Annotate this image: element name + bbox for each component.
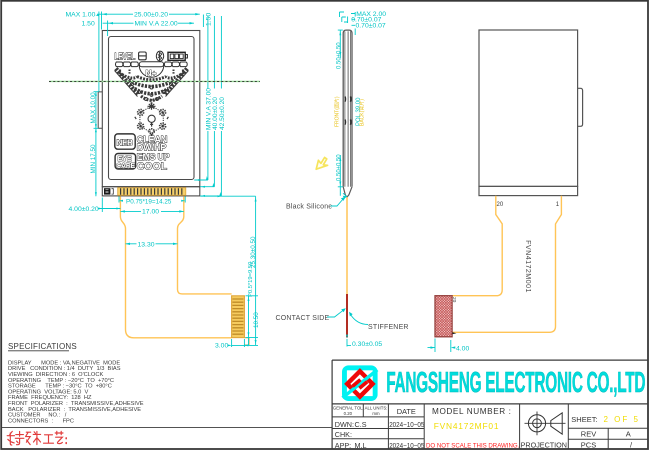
svg-text:2024−10−05: 2024−10−05 [389,421,424,429]
svg-text:CONTACT SIDE: CONTACT SIDE [276,315,330,322]
svg-text:GENERAL TOL: GENERAL TOL [333,406,363,411]
svg-text:2024−10−05: 2024−10−05 [389,443,424,451]
svg-text:0.50±0.50: 0.50±0.50 [336,154,342,181]
svg-text:P0.5*19=9.50: P0.5*19=9.50 [248,262,254,297]
svg-text:M.L: M.L [355,441,367,450]
svg-text:0.50±0.50: 0.50±0.50 [336,42,342,69]
svg-text:ALL UNITS:: ALL UNITS: [365,406,388,411]
svg-text:FRONT(面片): FRONT(面片) [334,96,341,127]
svg-text:0.30±0.05: 0.30±0.05 [352,341,382,348]
svg-text:4.00±0.20: 4.00±0.20 [69,206,99,213]
svg-text:MODEL NUMBER :: MODEL NUMBER : [432,407,512,416]
svg-text:NEB: NEB [117,138,134,147]
svg-text:10.50: 10.50 [253,312,260,328]
svg-text:EYE: EYE [118,156,132,163]
svg-text:42.50±0.20: 42.50±0.20 [219,97,226,130]
svg-text:1.50: 1.50 [205,13,212,26]
svg-text:FVN4172M001: FVN4172M001 [524,240,533,293]
svg-text:20: 20 [497,202,504,208]
svg-text:MAX 10.00: MAX 10.00 [90,92,97,124]
svg-text:A: A [626,429,631,438]
svg-text:PCS: PCS [581,440,596,449]
svg-text:mm: mm [372,411,380,416]
svg-text:MIN V.A 22.00: MIN V.A 22.00 [135,21,178,28]
svg-text:MIN 17.50: MIN 17.50 [90,144,97,174]
svg-text:0.70±0.07: 0.70±0.07 [356,23,386,30]
svg-text:Black Silicone: Black Silicone [286,204,332,211]
svg-text:COOL: COOL [137,161,167,172]
svg-text:1.50: 1.50 [82,21,95,28]
svg-text:0.20: 0.20 [344,411,353,416]
svg-text:DO NOT SCALE THIS DRAWING.: DO NOT SCALE THIS DRAWING. [426,443,520,450]
svg-text:APP:: APP: [335,441,351,450]
svg-text:PROJECTION: PROJECTION [521,440,567,449]
svg-text:CONNECTORS : FPC: CONNECTORS : FPC [8,418,74,424]
svg-text:LEVEL: LEVEL [115,51,136,61]
svg-text:13.30: 13.30 [138,241,155,248]
svg-text:1: 1 [556,202,560,208]
svg-text:CARE: CARE [116,163,135,170]
svg-text:MAX 1.00: MAX 1.00 [66,12,96,19]
svg-text:17.00: 17.00 [142,209,159,216]
svg-text:SHEET:: SHEET: [571,415,597,424]
svg-text:STIFFENER: STIFFENER [368,324,409,331]
svg-text:SPECIFICATIONS: SPECIFICATIONS [8,342,77,351]
svg-text:FVN4172MF01: FVN4172MF01 [434,421,500,431]
svg-text:C.S: C.S [355,420,367,429]
svg-text:N+: N+ [146,68,157,78]
svg-text:P0.75*19=14.25: P0.75*19=14.25 [126,198,172,205]
svg-text:25.00±0.20: 25.00±0.20 [134,12,168,19]
svg-text:20: 20 [451,297,457,303]
svg-text:DATE: DATE [397,407,416,416]
svg-text:DWN:: DWN: [335,420,354,429]
svg-text:CHK:: CHK: [335,430,352,439]
svg-text:REV: REV [581,429,596,438]
svg-text:3.00: 3.00 [215,343,228,350]
svg-text:2 OF 5: 2 OF 5 [604,415,640,424]
svg-text:/: / [630,440,633,449]
svg-text:BACK(背片): BACK(背片) [359,99,366,126]
svg-text:4.00: 4.00 [456,346,469,353]
svg-text:40.00±0.20: 40.00±0.20 [212,97,219,130]
svg-text:FANGSHENG ELECTRONIC CO.,LTD: FANGSHENG ELECTRONIC CO.,LTD [386,366,645,398]
